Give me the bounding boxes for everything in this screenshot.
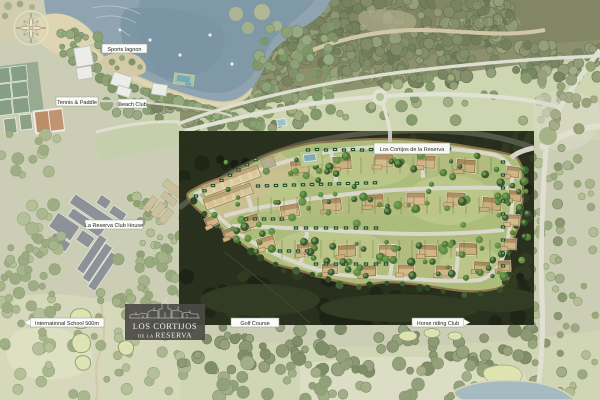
svg-text:La Reserva Club House: La Reserva Club House	[85, 223, 143, 229]
svg-text:Sports lagoon: Sports lagoon	[108, 47, 142, 53]
svg-text:Beach Club: Beach Club	[118, 102, 146, 108]
svg-text:Golf Course: Golf Course	[240, 321, 269, 327]
svg-text:Horse riding Club: Horse riding Club	[417, 321, 460, 327]
svg-text:Tennis & Paddle: Tennis & Paddle	[57, 100, 97, 106]
svg-text:LOS CORTIJOS: LOS CORTIJOS	[133, 321, 198, 331]
svg-text:International School 500m: International School 500m	[35, 321, 99, 327]
